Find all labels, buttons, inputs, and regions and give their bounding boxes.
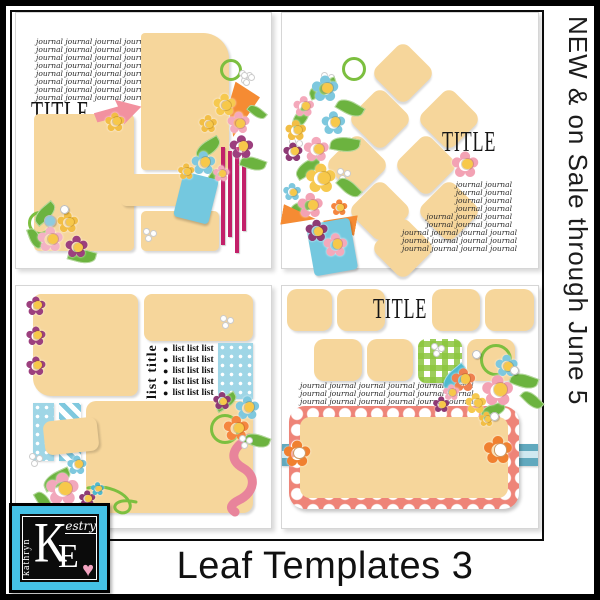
template-page-1: journal journal journal journaljournal j…: [15, 12, 272, 269]
bullet-list: ●list list list ●list list list ●list li…: [163, 344, 214, 399]
bead-dots: [144, 229, 149, 234]
flower-icon: ✿: [25, 323, 51, 349]
photo-placeholder: [485, 289, 534, 331]
designer-logo: kathryn K estry E ♥: [9, 503, 110, 593]
list-item: ●list list list: [163, 344, 214, 355]
photo-placeholder: [144, 294, 253, 341]
flower-icon: ✿: [90, 480, 108, 498]
bullet-icon: ●: [163, 344, 168, 355]
bead-dots: [432, 344, 437, 349]
list-item: ●list list list: [163, 388, 214, 399]
button-icon: [472, 350, 481, 359]
flower-icon: ✿: [228, 131, 260, 163]
flower-icon: ✿: [222, 412, 256, 446]
page-title: TITLE: [373, 292, 427, 326]
logo-last-name: estry: [65, 519, 96, 534]
side-promo-text: NEW & on Sale through June 5: [547, 16, 593, 534]
vine-loop-icon: [220, 59, 242, 81]
journal-text: journal journaljournal journaljournal jo…: [402, 181, 512, 253]
heart-icon: ♥: [82, 560, 94, 580]
bead-dots: [30, 454, 35, 459]
flower-icon: ✿: [282, 181, 306, 205]
flower-icon: ✿: [322, 229, 354, 261]
logo-inner-box: kathryn K estry E ♥: [20, 514, 99, 582]
flower-icon: ✿: [25, 293, 51, 319]
button-icon: [60, 205, 69, 214]
template-page-2: TITLE ✿ journal journaljournal journaljo…: [281, 12, 539, 269]
photo-placeholder: [287, 289, 332, 331]
journal-text: journal journal journal journaljournal j…: [36, 38, 146, 102]
list-item: ●list list list: [163, 366, 214, 377]
flower-icon: ✿: [282, 436, 318, 472]
bead-dots: [221, 316, 226, 321]
flower-icon: ✿: [212, 163, 234, 185]
button-icon: [510, 366, 519, 375]
flower-icon: ✿: [450, 147, 486, 183]
bead-dots: [240, 436, 245, 441]
bullet-icon: ●: [163, 388, 168, 399]
flower-icon: ✿: [104, 109, 130, 135]
logo-initial-e: E: [58, 540, 79, 574]
photo-placeholder: [432, 289, 480, 331]
bullet-icon: ●: [163, 366, 168, 377]
list-title: list title: [145, 343, 161, 399]
photo-placeholder: [314, 339, 362, 381]
footer-title: Leaf Templates 3: [140, 545, 510, 591]
flower-icon: ✿: [177, 161, 199, 183]
flower-icon: ✿: [432, 394, 454, 416]
flower-bouquet: ✿ ✿ ✿ ✿ ✿ ✿ ✿ ✿ ✿ ✿ ✿ ✿: [282, 53, 367, 263]
list-item: ●list list list: [163, 355, 214, 366]
bullet-icon: ●: [163, 377, 168, 388]
button-icon: [490, 412, 499, 421]
photo-placeholder: [367, 339, 413, 381]
bead-dots: [242, 73, 247, 78]
flower-icon: ✿: [330, 197, 352, 219]
flower-icon: ✿: [482, 432, 520, 470]
product-preview-poster: journal journal journal journaljournal j…: [0, 0, 600, 600]
list-item: ●list list list: [163, 377, 214, 388]
logo-first-name: kathryn: [21, 518, 32, 576]
photo-placeholder: [300, 417, 508, 498]
template-page-4: TITLE journal journal journal journal jo…: [281, 285, 539, 529]
template-page-3: ✿ ✿ ✿ list title ●list list list ●list l…: [15, 285, 272, 529]
journal-text: journal journal journal journal journal …: [300, 382, 440, 406]
flower-icon: ✿: [198, 113, 222, 137]
bullet-icon: ●: [163, 355, 168, 366]
flower-icon: ✿: [25, 353, 51, 379]
flower-icon: ✿: [64, 233, 94, 263]
